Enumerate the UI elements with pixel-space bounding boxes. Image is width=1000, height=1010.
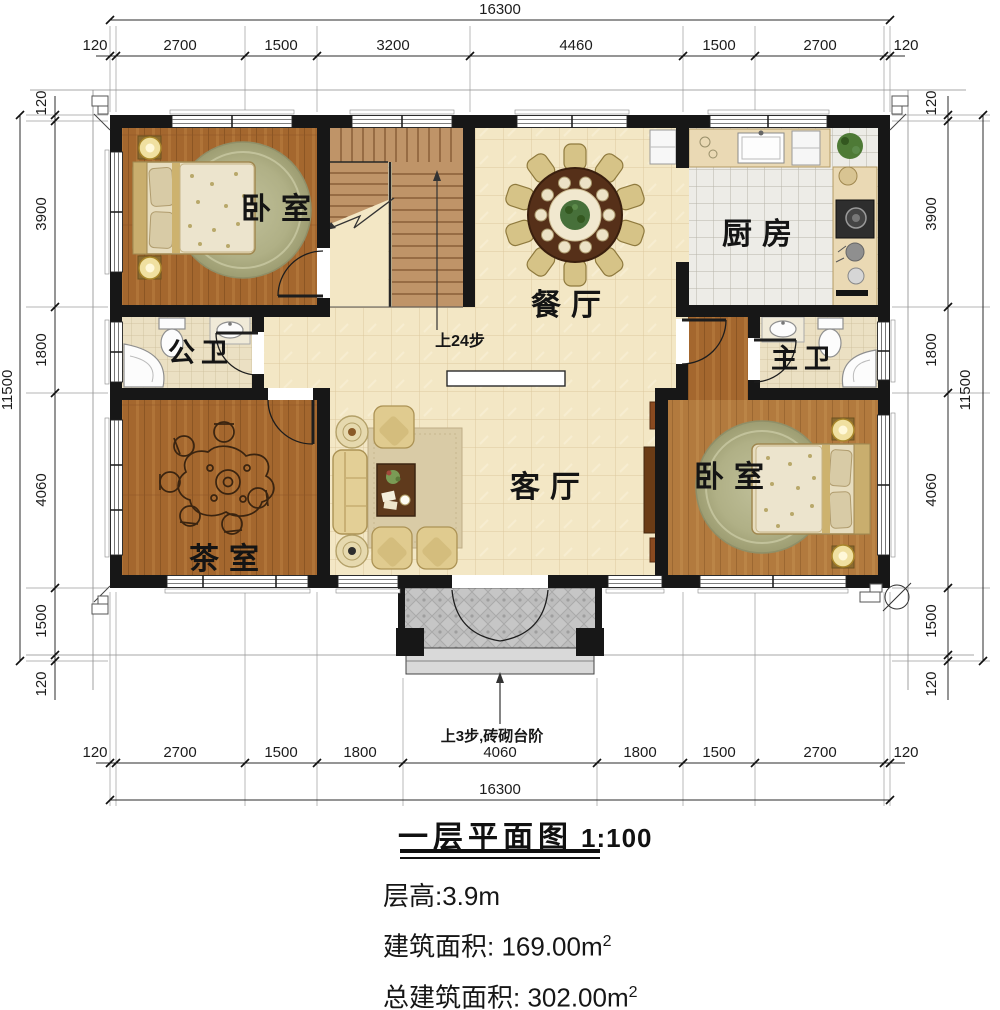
porch-pier-left [396,628,424,656]
dim-label: 120 [893,744,918,761]
dim-label: 3900 [33,197,50,230]
dim-label: 1500 [33,604,50,637]
spec-block: 层高:3.9m 建筑面积: 169.00m2 总建筑面积: 302.00m2 [383,874,638,1010]
dim-label: 1500 [702,37,735,54]
window [111,152,123,272]
dim-label: 4060 [33,473,50,506]
dim-label: 120 [923,90,940,115]
side-table [336,416,368,448]
counter-end [836,290,868,296]
dim-label: 4060 [923,473,940,506]
sofa-long [333,450,367,534]
window [111,322,123,382]
spec-floor-height: 层高:3.9m [383,874,638,919]
entry-note: 上3步,砖砌台阶 [441,727,545,745]
spec-building-area: 建筑面积: 169.00m2 [383,919,638,970]
plant [837,133,863,159]
spec-total-area: 总建筑面积: 302.00m2 [383,970,638,1010]
dim-label: 1800 [343,744,376,761]
side-table [336,535,368,567]
window [352,116,452,128]
dim-top-total: 16300 [479,1,521,18]
room-label-master-bath: 主卫 [771,344,837,374]
dim-label: 2700 [803,37,836,54]
dim-label: 120 [82,37,107,54]
room-label-bedroom-right: 卧室 [694,460,774,494]
armchair [372,527,412,569]
room-label-tea: 茶室 [189,542,269,576]
hall-cabinet [447,371,565,386]
dim-left-total: 11500 [0,370,16,411]
living-room-furniture [333,406,462,569]
floor-corridor [688,317,748,400]
window [111,420,123,555]
dim-label: 4460 [559,37,592,54]
room-label-public-bath: 公卫 [168,338,234,368]
porch [396,588,604,674]
armchair [417,527,457,569]
room-label-dining: 餐厅 [531,289,611,322]
window [172,116,292,128]
room-label-living: 客厅 [510,470,590,504]
room-label-kitchen: 厨房 [722,218,802,251]
dim-label: 1800 [623,744,656,761]
dim-label: 120 [33,671,50,696]
window [878,322,890,380]
dim-label: 2700 [163,37,196,54]
dim-label: 3900 [923,197,940,230]
dim-right-total: 11500 [957,370,974,411]
toilet-tank [159,318,185,329]
dim-label: 1500 [264,744,297,761]
dim-label: 120 [893,37,918,54]
porch-pier-right [576,628,604,656]
window [878,415,890,555]
dim-label: 120 [923,671,940,696]
floor-plan-page: 16300 120 2700 1500 3200 4460 1500 2700 … [0,0,1000,1010]
dim-label: 1500 [923,604,940,637]
dim-label: 4060 [483,744,516,761]
stair-note: 上24步 [435,331,485,350]
dim-label: 2700 [803,744,836,761]
dim-bottom-total: 16300 [479,781,521,798]
pot [839,167,857,185]
window [338,576,398,588]
window [700,576,846,588]
title-underline-thick [400,849,600,853]
floor-plan-canvas: 16300 120 2700 1500 3200 4460 1500 2700 … [0,0,1000,1010]
dim-label: 1500 [264,37,297,54]
dim-label: 1800 [923,333,940,366]
dim-label: 120 [33,90,50,115]
room-label-bedroom-left: 卧室 [241,192,321,226]
armchair [374,406,414,448]
title-underline-thin [400,857,600,859]
staircase [326,128,463,330]
coffee-table [377,464,415,516]
window [517,116,627,128]
window [167,576,308,588]
window [710,116,827,128]
toilet-tank [818,318,843,329]
dim-label: 1800 [33,333,50,366]
dim-label: 120 [82,744,107,761]
bed [133,162,255,254]
bowl [848,268,864,284]
dim-label: 3200 [376,37,409,54]
annotation-leaders [496,672,504,724]
dim-label: 2700 [163,744,196,761]
dim-label: 1500 [702,744,735,761]
bowl [846,243,864,261]
window [608,576,662,588]
